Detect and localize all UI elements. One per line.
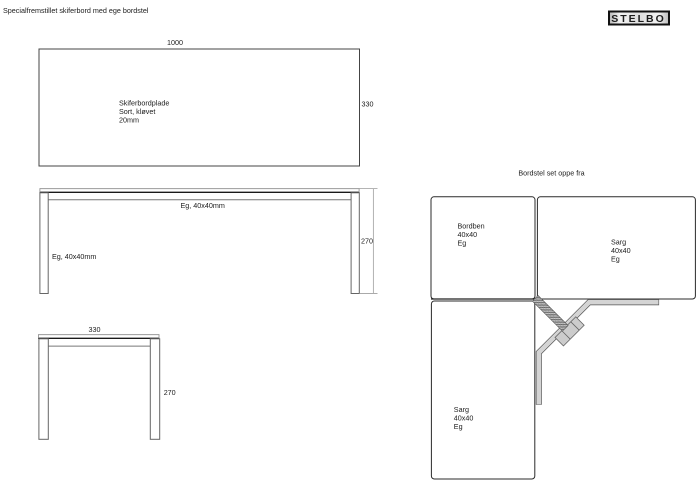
svg-text:20mm: 20mm: [119, 116, 139, 125]
svg-text:Bordstel set oppe fra: Bordstel set oppe fra: [518, 169, 584, 178]
svg-text:330: 330: [89, 325, 101, 334]
svg-text:Eg, 40x40mm: Eg, 40x40mm: [181, 201, 225, 210]
svg-text:270: 270: [361, 237, 373, 246]
svg-text:Eg, 40x40mm: Eg, 40x40mm: [52, 252, 96, 261]
svg-text:270: 270: [164, 388, 176, 397]
svg-text:Eg: Eg: [454, 422, 463, 431]
svg-text:1000: 1000: [167, 38, 183, 47]
svg-text:Eg: Eg: [611, 254, 620, 263]
svg-text:STELBO: STELBO: [611, 13, 666, 25]
svg-text:330: 330: [362, 100, 374, 109]
svg-text:Specialfremstillet skiferbord: Specialfremstillet skiferbord med ege bo…: [3, 6, 149, 15]
svg-text:Eg: Eg: [458, 238, 467, 247]
